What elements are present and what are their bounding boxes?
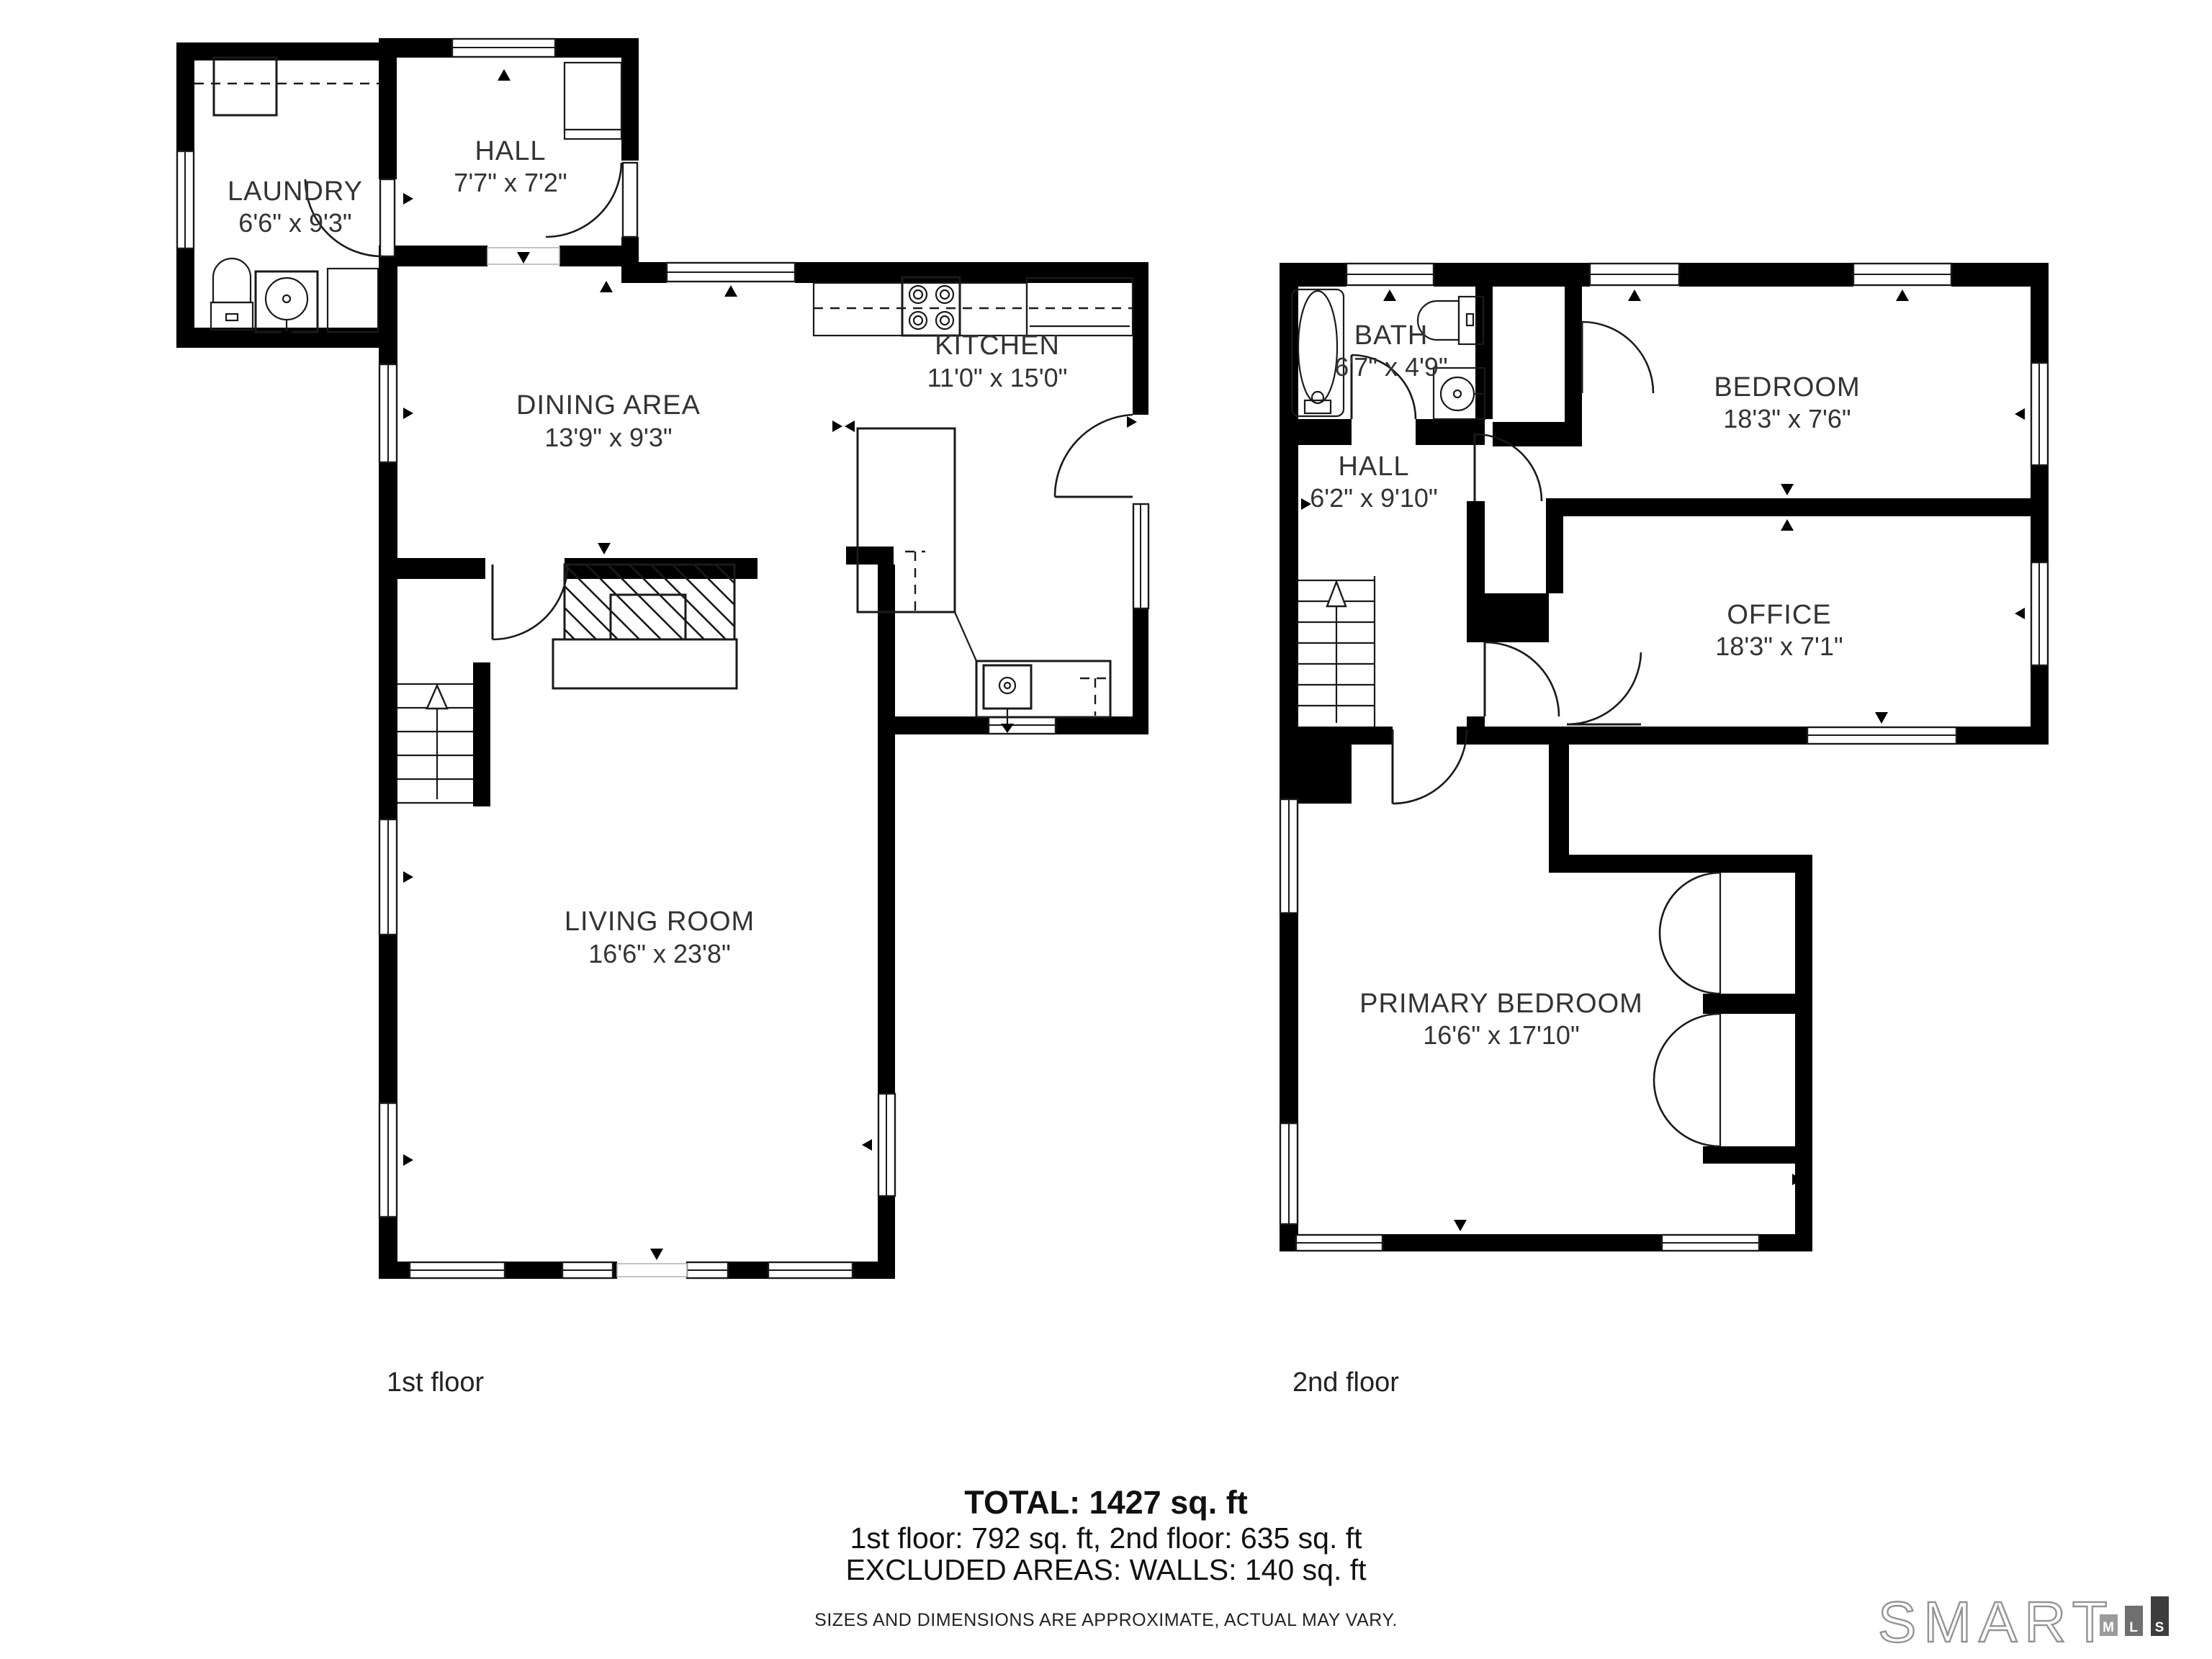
kitchen-counter [814, 283, 1133, 336]
office-door [1567, 652, 1641, 724]
fireplace-icon [553, 565, 737, 688]
room-label-hall2: HALL [1338, 451, 1409, 482]
living-exterior-door-opening [617, 1264, 687, 1277]
room-dims-laundry: 6'6" x 9'3" [238, 208, 351, 238]
floor1-plan: LAUNDRY 6'6" x 9'3" HALL 7'7" x 7'2" DIN… [176, 38, 1148, 1279]
room-dims-office: 18'3" x 7'1" [1715, 631, 1843, 661]
window [878, 1094, 895, 1196]
primary-bedroom-door [1393, 729, 1467, 804]
windows [1280, 264, 2048, 1251]
window [452, 39, 555, 57]
window [667, 263, 795, 282]
room-dims-kitchen: 11'0" x 15'0" [927, 363, 1068, 392]
total-area-text: TOTAL: 1427 sq. ft [964, 1484, 1247, 1521]
room-dims-primary: 16'6" x 17'10" [1423, 1020, 1579, 1050]
room-dims-living: 16'6" x 23'8" [588, 939, 730, 968]
room-dims-bath: 6'7" x 4'9" [1334, 352, 1447, 382]
window [1662, 1235, 1759, 1251]
stove-icon [902, 277, 960, 336]
window [1133, 504, 1148, 608]
window [562, 1262, 613, 1278]
fridge-icon [1027, 278, 1133, 336]
floor-areas-text: 1st floor: 792 sq. ft, 2nd floor: 635 sq… [850, 1521, 1362, 1555]
up-arrow-icon [427, 685, 447, 799]
floor2-plan: BATH 6'7" x 4'9" HALL 6'2" x 9'10" BEDRO… [1280, 263, 2049, 1251]
room-label-primary: PRIMARY BEDROOM [1359, 989, 1643, 1019]
logo-letter-m: M [2103, 1620, 2114, 1635]
window [379, 364, 397, 462]
floor2-caption: 2nd floor [1292, 1367, 1399, 1398]
up-arrow-icon [1327, 582, 1346, 723]
logo-letter-s: S [2155, 1620, 2164, 1635]
walls [1280, 263, 2049, 1251]
stairs-icon [1298, 576, 1375, 727]
logo-letter-l: L [2129, 1620, 2138, 1635]
window [379, 819, 397, 935]
window [1280, 799, 1298, 913]
smartmls-logo: SMART M L S [1878, 1590, 2169, 1654]
logo-brand-text: SMART [1878, 1590, 2115, 1654]
window [2031, 363, 2048, 465]
floorplan-page: LAUNDRY 6'6" x 9'3" HALL 7'7" x 7'2" DIN… [0, 0, 2212, 1659]
room-dims-hall2: 6'2" x 9'10" [1310, 483, 1437, 513]
room-label-hall1: HALL [475, 136, 546, 166]
room-label-kitchen: KITCHEN [935, 331, 1060, 361]
laundry-counter [328, 269, 378, 332]
window [410, 1262, 505, 1278]
window [177, 151, 194, 248]
room-dims-bedroom: 18'3" x 7'6" [1723, 404, 1851, 433]
vestibule-door [1485, 642, 1559, 716]
living-room-door [493, 565, 567, 639]
disclaimer-text: SIZES AND DIMENSIONS ARE APPROXIMATE, AC… [814, 1610, 1398, 1630]
opening-markers [1301, 289, 2025, 1231]
summary-block: TOTAL: 1427 sq. ft 1st floor: 792 sq. ft… [814, 1484, 1398, 1630]
washer-icon [194, 58, 379, 115]
stairs-icon [397, 684, 473, 803]
window [1853, 264, 1951, 285]
floor1-caption: 1st floor [387, 1367, 485, 1398]
room-label-laundry: LAUNDRY [228, 176, 363, 207]
excluded-areas-text: EXCLUDED AREAS: WALLS: 140 sq. ft [845, 1553, 1367, 1586]
room-label-bedroom: BEDROOM [1714, 372, 1860, 403]
room-label-office: OFFICE [1727, 600, 1831, 630]
window [1280, 1123, 1298, 1224]
kitchen-door [1055, 415, 1133, 497]
room-dims-dining: 13'9" x 9'3" [544, 423, 672, 452]
closet-2 [1654, 1014, 1720, 1146]
closet-1 [1660, 873, 1720, 994]
window [687, 1262, 728, 1278]
window [768, 1262, 853, 1278]
window [989, 717, 1056, 734]
floorplan-drawing: LAUNDRY 6'6" x 9'3" HALL 7'7" x 7'2" DIN… [0, 0, 2212, 1659]
room-label-dining: DINING AREA [516, 390, 701, 421]
toilet-icon [211, 258, 253, 330]
room-label-bath: BATH [1354, 320, 1429, 351]
window [379, 1103, 397, 1217]
closet-door [1582, 322, 1653, 393]
room-dims-hall1: 7'7" x 7'2" [454, 168, 567, 197]
window [1296, 1235, 1382, 1251]
window [1346, 264, 1434, 285]
window [1807, 727, 1956, 744]
hall-closet [565, 63, 621, 139]
window [2031, 562, 2048, 665]
room-label-living: LIVING ROOM [565, 907, 755, 937]
window [1590, 264, 1679, 285]
